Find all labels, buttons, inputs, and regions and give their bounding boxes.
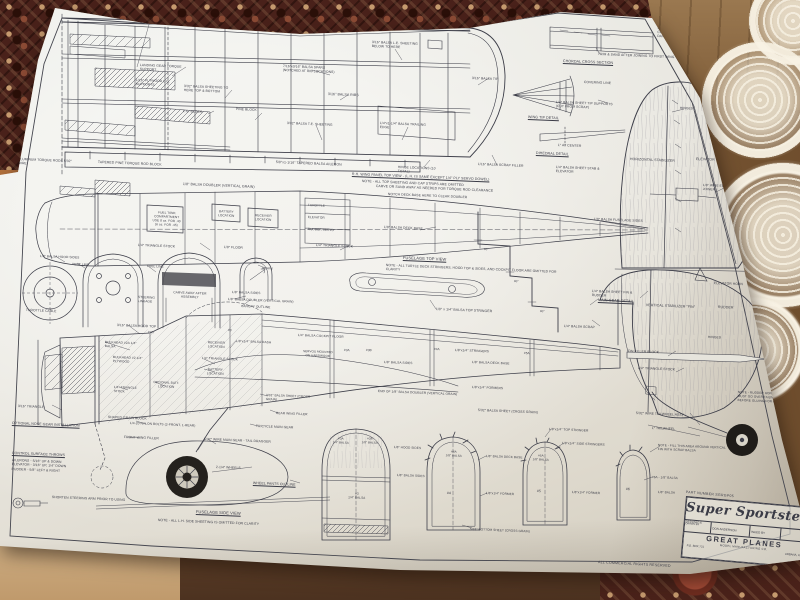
plan-label: #5 bbox=[537, 489, 551, 494]
plan-label: MAIN GEAR DETAIL bbox=[598, 298, 668, 306]
plan-label: #3B 1/8" BALSA bbox=[357, 437, 383, 446]
plan-label: FUEL LINE bbox=[147, 264, 171, 269]
plan-label: 3/32" BALSA T.E. SHEETING bbox=[287, 121, 333, 127]
plan-label: 1/8" BALSA SIDES bbox=[232, 290, 280, 296]
plan-label: ELEVATOR HORN bbox=[714, 281, 769, 287]
plan-label: 1° AT CENTER bbox=[558, 143, 598, 149]
plan-label: L.G. BLOCK bbox=[183, 109, 223, 115]
plan-label: 3/16" BALSA RIBS bbox=[328, 92, 388, 99]
plan-label: #6 bbox=[626, 487, 638, 492]
plan-label: BATTERY LOCATION bbox=[214, 209, 239, 218]
plan-label: 1/4" TRIANGLE STOCK bbox=[638, 366, 713, 373]
plan-label: VENT LINE bbox=[72, 262, 102, 267]
plan-label: ALUMINUM TORQUE RODS 5/32" WIRE bbox=[18, 157, 76, 168]
plan-label: 1/8" BALSA DECK BASE bbox=[486, 454, 526, 460]
plan-label: #4 bbox=[447, 491, 461, 496]
plan-label: 1/4"x1/4" BALSA LEADING EDGE bbox=[290, 16, 410, 25]
plan-label: 1/8"x1/4" FORMERS bbox=[472, 385, 534, 392]
plan-label: 1/8"x1/4" SIDE STRINGERS bbox=[562, 441, 670, 449]
plan-label: 1/4" BALSA COCKPIT FLOOR bbox=[298, 333, 364, 340]
plan-label: 90° bbox=[484, 248, 498, 252]
plan-label: NOTCH DECK BASE HERE TO CLEAR DOUBLER bbox=[388, 192, 516, 201]
plan-label: 1/8" WIRE ELEVATOR JOINER bbox=[703, 183, 745, 193]
title-block: Super Sportster DESIGNED & DRAWN BY DON … bbox=[681, 496, 800, 569]
plan-label: #5A 1/8" BALSA bbox=[528, 454, 554, 463]
plan-label: 1/8" BALSA SIDES bbox=[384, 360, 436, 366]
plan-label: 1/4" TRIANGLE STOCK bbox=[316, 243, 378, 250]
plan-label: RUDDER SERVO bbox=[308, 227, 336, 232]
plan-label: HINGES bbox=[708, 335, 738, 340]
plan-label: #4A bbox=[434, 347, 448, 352]
plan-label: 1/8"x1/4" FORMER bbox=[572, 490, 616, 496]
plan-annotations: 1-3/4" MAPLE WING BOLT DOWN PLATE (FILL … bbox=[0, 0, 800, 600]
plan-label: 1/8" BALSA FUSELAGE SIDES bbox=[594, 217, 656, 224]
plan-sheet-wrapper: 1-3/4" MAPLE WING BOLT DOWN PLATE (FILL … bbox=[0, 0, 800, 600]
plan-label: SHORTEN STEERING ARM PRIOR TO USING bbox=[52, 495, 140, 503]
plan-label: 3/16" TRIANGLE bbox=[18, 404, 76, 411]
plan-label: 1/16" PLYWOOD L.G. SUPPORTS bbox=[136, 78, 180, 88]
designed-by-label: DESIGNED & DRAWN BY bbox=[684, 520, 712, 533]
plan-sheet: 1-3/4" MAPLE WING BOLT DOWN PLATE (FILL … bbox=[0, 0, 800, 600]
plan-label: 1/8" BALSA DOUBLER (VERTICAL GRAIN) bbox=[183, 182, 318, 192]
plan-label: 7/16"x3/16" BALSA SPARS (NOTCHED AT RIB … bbox=[283, 64, 339, 75]
plan-label: ELEVATOR bbox=[308, 215, 336, 220]
plan-label: TRIM & SAND AFTER JOINING TO FIRST WING bbox=[598, 52, 716, 61]
plan-label: OPTIONAL NOSE GEAR INSTALLATION bbox=[12, 421, 136, 431]
plan-label: CARVE AWAY AFTER ASSEMBLY bbox=[167, 290, 213, 300]
plan-label: CANOPY OUTLINE bbox=[241, 304, 296, 310]
plan-label: 1/8"x1/4" BALSA DASH bbox=[236, 339, 274, 345]
plan-label: 1/4" TRIANGLE STOCK bbox=[138, 243, 200, 250]
plan-label: 3/32" BALSA SHEETING TO HERE TOP & BOTTO… bbox=[184, 84, 234, 95]
plan-label: GRAIN bbox=[262, 266, 286, 271]
plan-label: PINE BLOCK bbox=[236, 107, 262, 112]
plan-label: LANDING GEAR TORQUE SUPPORT bbox=[140, 63, 186, 73]
plan-label: #4A 1/8" BALSA bbox=[440, 450, 468, 459]
plan-label: 1/8"x1/4" STRINGERS bbox=[455, 348, 513, 354]
plan-label: RECEIVER LOCATION bbox=[250, 213, 277, 222]
plan-label: 1/8"x1/4" FORMER bbox=[486, 491, 530, 497]
plan-label: 5/32" WIRE MAIN GEAR - TAIL DRAGGER bbox=[204, 437, 322, 446]
plan-label: TRICYCLE MAIN GEAR bbox=[256, 424, 336, 431]
plan-label: 1/8" x 1/4" BALSA TOP STRINGER bbox=[436, 307, 544, 316]
plan-label: #3A bbox=[344, 348, 358, 353]
plan-label: 5/32" BALSA SHEET (CROSS GRAIN) bbox=[478, 408, 586, 417]
plan-label: 1/4" TRIANGLE STOCK bbox=[114, 385, 145, 394]
plan-label: NOTE - ALL L.H. SIDE SHEETING IS OMITTED… bbox=[158, 518, 336, 530]
plan-label: REAR WING FILLER bbox=[276, 411, 332, 417]
plan-label: 1/4" BALSA SHEET TIP SUPPORTS (CUT FROM … bbox=[556, 100, 620, 111]
plan-label: 1/4" TRIANGLE STOCK bbox=[202, 356, 267, 363]
plan-label: 1/16" BALSA SCRAP FILLER bbox=[478, 162, 524, 168]
plan-label: #2A bbox=[148, 330, 162, 335]
plan-label: BULKHEAD #2A 1/4" BALSA bbox=[105, 340, 147, 350]
plan-label: 3/32" BALSA SHEET (CROSS GRAIN) bbox=[266, 393, 316, 403]
plan-label: RECEIVER LOCATION bbox=[202, 340, 231, 349]
plan-label: HINGES bbox=[680, 106, 710, 111]
plan-label: FUSELAGE SIDE VIEW bbox=[196, 509, 290, 518]
plan-label: 1/8" BALSA DECK BASE bbox=[472, 360, 536, 367]
plan-label: ELEVATOR bbox=[696, 157, 736, 163]
plan-label: WHEEL PANTS OUTLINE bbox=[253, 481, 343, 489]
plan-label: 1/4" BALSA SCRAP bbox=[564, 324, 624, 331]
plan-label: WING TIP DETAIL bbox=[528, 115, 588, 122]
plan-label: 2-1/4" WHEELS bbox=[216, 465, 276, 472]
plan-label: 5/32" WIRE TAILWHEEL ASSY bbox=[636, 411, 731, 419]
plan-label: BATTERY LOCATION bbox=[202, 367, 229, 376]
plan-label: NOTE - EPOXY CENTER SECTION JOINTS TOGET… bbox=[657, 17, 750, 42]
plan-label: OPTIONAL BATT. LOCATION bbox=[152, 380, 181, 389]
plan-label: FIN FILLER BLOCK bbox=[628, 349, 698, 356]
plan-label: BULKHEAD #2 1/4" PLYWOOD bbox=[113, 355, 155, 365]
company-address: P.O. BOX 721 bbox=[687, 544, 705, 548]
plan-label: 3/16" BALSA TIP bbox=[472, 76, 506, 82]
plan-label: 5/8"x1-1/16" TAPERED BALSA AILERON bbox=[276, 160, 411, 170]
plan-label: FUSELAGE TOP VIEW bbox=[403, 255, 495, 264]
plan-label: 1-3/4" MAPLE WING BOLT DOWN PLATE (FILL … bbox=[112, 12, 282, 23]
title-block-empty-cell bbox=[781, 528, 800, 541]
plan-label: NOTE - FILL THIS AREA AROUND VERTICAL FI… bbox=[658, 443, 730, 454]
plan-label: THROTTLE CABLE bbox=[26, 308, 74, 314]
plan-label: #5A bbox=[524, 351, 538, 356]
plan-label: THROTTLE bbox=[308, 203, 336, 208]
plan-label: 1/8" BALSA HOOD SIDES bbox=[40, 254, 88, 260]
plan-label: 1" TAILWHEEL bbox=[652, 426, 697, 432]
plan-label: CHORDAL CROSS SECTION bbox=[563, 59, 645, 67]
plan-label: 1/8" HOOD SIDES bbox=[394, 445, 424, 450]
plan-label: 5/32" BOTTOM SHEET (CROSS GRAIN) bbox=[470, 527, 532, 534]
plan-label: #3B bbox=[366, 348, 380, 353]
plan-label: AILERONS - 5/16" UP & DOWN ELEVATOR - 3/… bbox=[11, 458, 113, 475]
plan-label: TAPERED PINE TORQUE ROD BLOCK bbox=[98, 160, 216, 169]
plan-label: 1/4"x1-1/4" BALSA TRAILING EDGE bbox=[380, 121, 430, 132]
plan-label: #3 1/4" BALSA bbox=[342, 491, 372, 500]
plan-label: #3A 1/4" BALSA bbox=[328, 437, 354, 446]
plan-label: 90° bbox=[514, 280, 528, 284]
plan-label: 1/8" BALSA SIDES bbox=[397, 473, 429, 478]
plan-label: #6A - 1/8" BALSA bbox=[652, 475, 700, 481]
plan-label: END OF 1/8" BALSA DOUBLER (VERTICAL GRAI… bbox=[378, 389, 468, 397]
plan-label: STEERING LINKAGE bbox=[138, 295, 170, 305]
plan-label: HORIZONTAL STABILIZER bbox=[630, 157, 686, 164]
plan-label: 90° bbox=[540, 310, 554, 314]
company-city: URBANA, IL bbox=[785, 553, 800, 557]
plan-label: DIHEDRAL DETAIL bbox=[536, 151, 598, 158]
plan-label: FUEL TANK COMPARTMENT USE 8 oz. FOR .40 … bbox=[148, 210, 185, 227]
photo-of-model-airplane-plan: 1-3/4" MAPLE WING BOLT DOWN PLATE (FILL … bbox=[0, 0, 800, 600]
plan-label: 3/16" BALSA L.E. SHEETING BELOW TO HERE bbox=[372, 40, 424, 51]
plan-label: NOTE - ALL TURTLE DECK STRINGERS, HOOD T… bbox=[386, 263, 558, 278]
plan-label: SERVOS MOUNTED ON HARDWOOD bbox=[303, 350, 333, 359]
plan-label: 1/8" FLOOR bbox=[224, 245, 254, 250]
plan-label: #3 bbox=[228, 328, 240, 332]
plan-label: COVERING LINE bbox=[584, 80, 629, 86]
plan-label: 1/8"x1/4" TOP STRINGER bbox=[549, 427, 651, 435]
plan-label: 1/8" BALSA DECK BASE bbox=[384, 225, 444, 232]
plan-label: RUDDER bbox=[718, 305, 754, 311]
plan-label: FRONT WING FILLER bbox=[124, 435, 208, 443]
plan-label: 1/4" BALSA SHEET STAB & ELEVATOR bbox=[556, 165, 614, 176]
plan-label: NOTE - RUDDER HORN AND PLATE MUST GO OVE… bbox=[738, 390, 798, 404]
